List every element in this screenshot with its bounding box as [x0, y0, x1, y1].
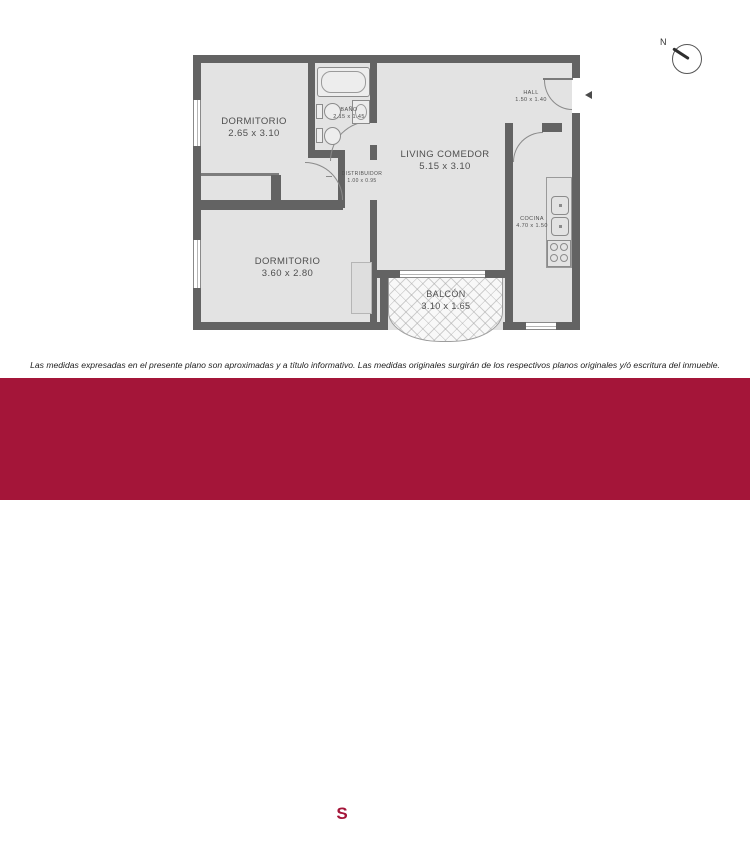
- bidet-tank: [316, 128, 323, 143]
- wreath-branch-left: [313, 783, 327, 835]
- footer-band: PLANOS|Dean Funes 1100, CABA • DESDE 192…: [0, 378, 750, 500]
- room-label-hall: HALL 1.50 x 1.40: [510, 90, 552, 104]
- burner-icon: [560, 243, 568, 251]
- window-symbol: [526, 322, 556, 330]
- address-label: Dean Funes 1100, CABA: [106, 806, 257, 821]
- closet: [351, 262, 372, 314]
- room-label-distribuidor: DISTRIBUIDOR 1.00 x 0.95: [332, 171, 392, 184]
- room-label-dormitorio-2: DORMITORIO 3.60 x 2.80: [225, 256, 350, 281]
- document-title: PLANOS|Dean Funes 1100, CABA: [32, 806, 256, 821]
- wall-segment: [193, 55, 201, 330]
- wall-segment: [193, 200, 343, 210]
- laurel-wreath-logo: ♛ S: [303, 773, 381, 843]
- brand-since-label: • DESDE 1921 •: [297, 764, 389, 770]
- wall-segment: [308, 63, 315, 155]
- surface-badge: [601, 774, 651, 824]
- room-label-bano: BAÑO 2.15 x 1.45: [322, 107, 376, 121]
- disclaimer-text: Las medidas expresadas en el presente pl…: [0, 360, 750, 370]
- floor-plan: DORMITORIO 2.65 x 3.10 BAÑO 2.15 x 1.45 …: [0, 0, 750, 378]
- entrance-arrow-icon: [585, 91, 592, 99]
- wreath-base: [327, 835, 357, 839]
- room-label-living: LIVING COMEDOR 5.15 x 3.10: [383, 149, 507, 174]
- wall-segment: [380, 278, 388, 322]
- room-label-dormitorio-1: DORMITORIO 2.65 x 3.10: [193, 116, 315, 141]
- doc-type-label: PLANOS: [32, 806, 90, 821]
- surface-value: 55.63M²: [576, 827, 680, 841]
- wall-segment: [542, 123, 562, 132]
- floorplan-flyer: { "colors": { "band": "#A41539", "wall":…: [0, 0, 750, 500]
- label-leader-line: [326, 176, 332, 177]
- wall-segment: [370, 145, 377, 160]
- wall-segment: [193, 55, 580, 63]
- burner-icon: [550, 243, 558, 251]
- entrance-opening: [572, 78, 580, 113]
- bathtub-inner: [321, 71, 366, 93]
- window-symbol: [193, 240, 201, 288]
- wall-segment: [193, 322, 388, 330]
- room-label-balcon: BALCÓN 3.10 x 1.65: [403, 289, 489, 312]
- burner-icon: [560, 254, 568, 262]
- bidet-icon: [324, 127, 341, 145]
- burner-icon: [550, 254, 558, 262]
- room-label-cocina: COCINA 4.70 x 1.50: [510, 216, 554, 230]
- sink-drain-dot: [559, 204, 562, 207]
- monogram-letter: S: [336, 804, 347, 823]
- crest-icon: ♛: [337, 776, 348, 790]
- wall-segment: [271, 175, 281, 202]
- brand-subtitle: PROPIEDADES: [380, 818, 456, 825]
- balcony-door-symbol: [400, 270, 485, 278]
- mini-floorplan-icon: [614, 787, 638, 811]
- brand-name: SPINELLI: [378, 796, 453, 819]
- sink-drain-dot: [559, 225, 562, 228]
- north-label: N: [660, 37, 667, 47]
- separator: |: [96, 806, 100, 821]
- wreath-branch-right: [357, 783, 371, 835]
- surface-label: Superficie Total: [576, 841, 680, 853]
- closet-line: [201, 173, 279, 176]
